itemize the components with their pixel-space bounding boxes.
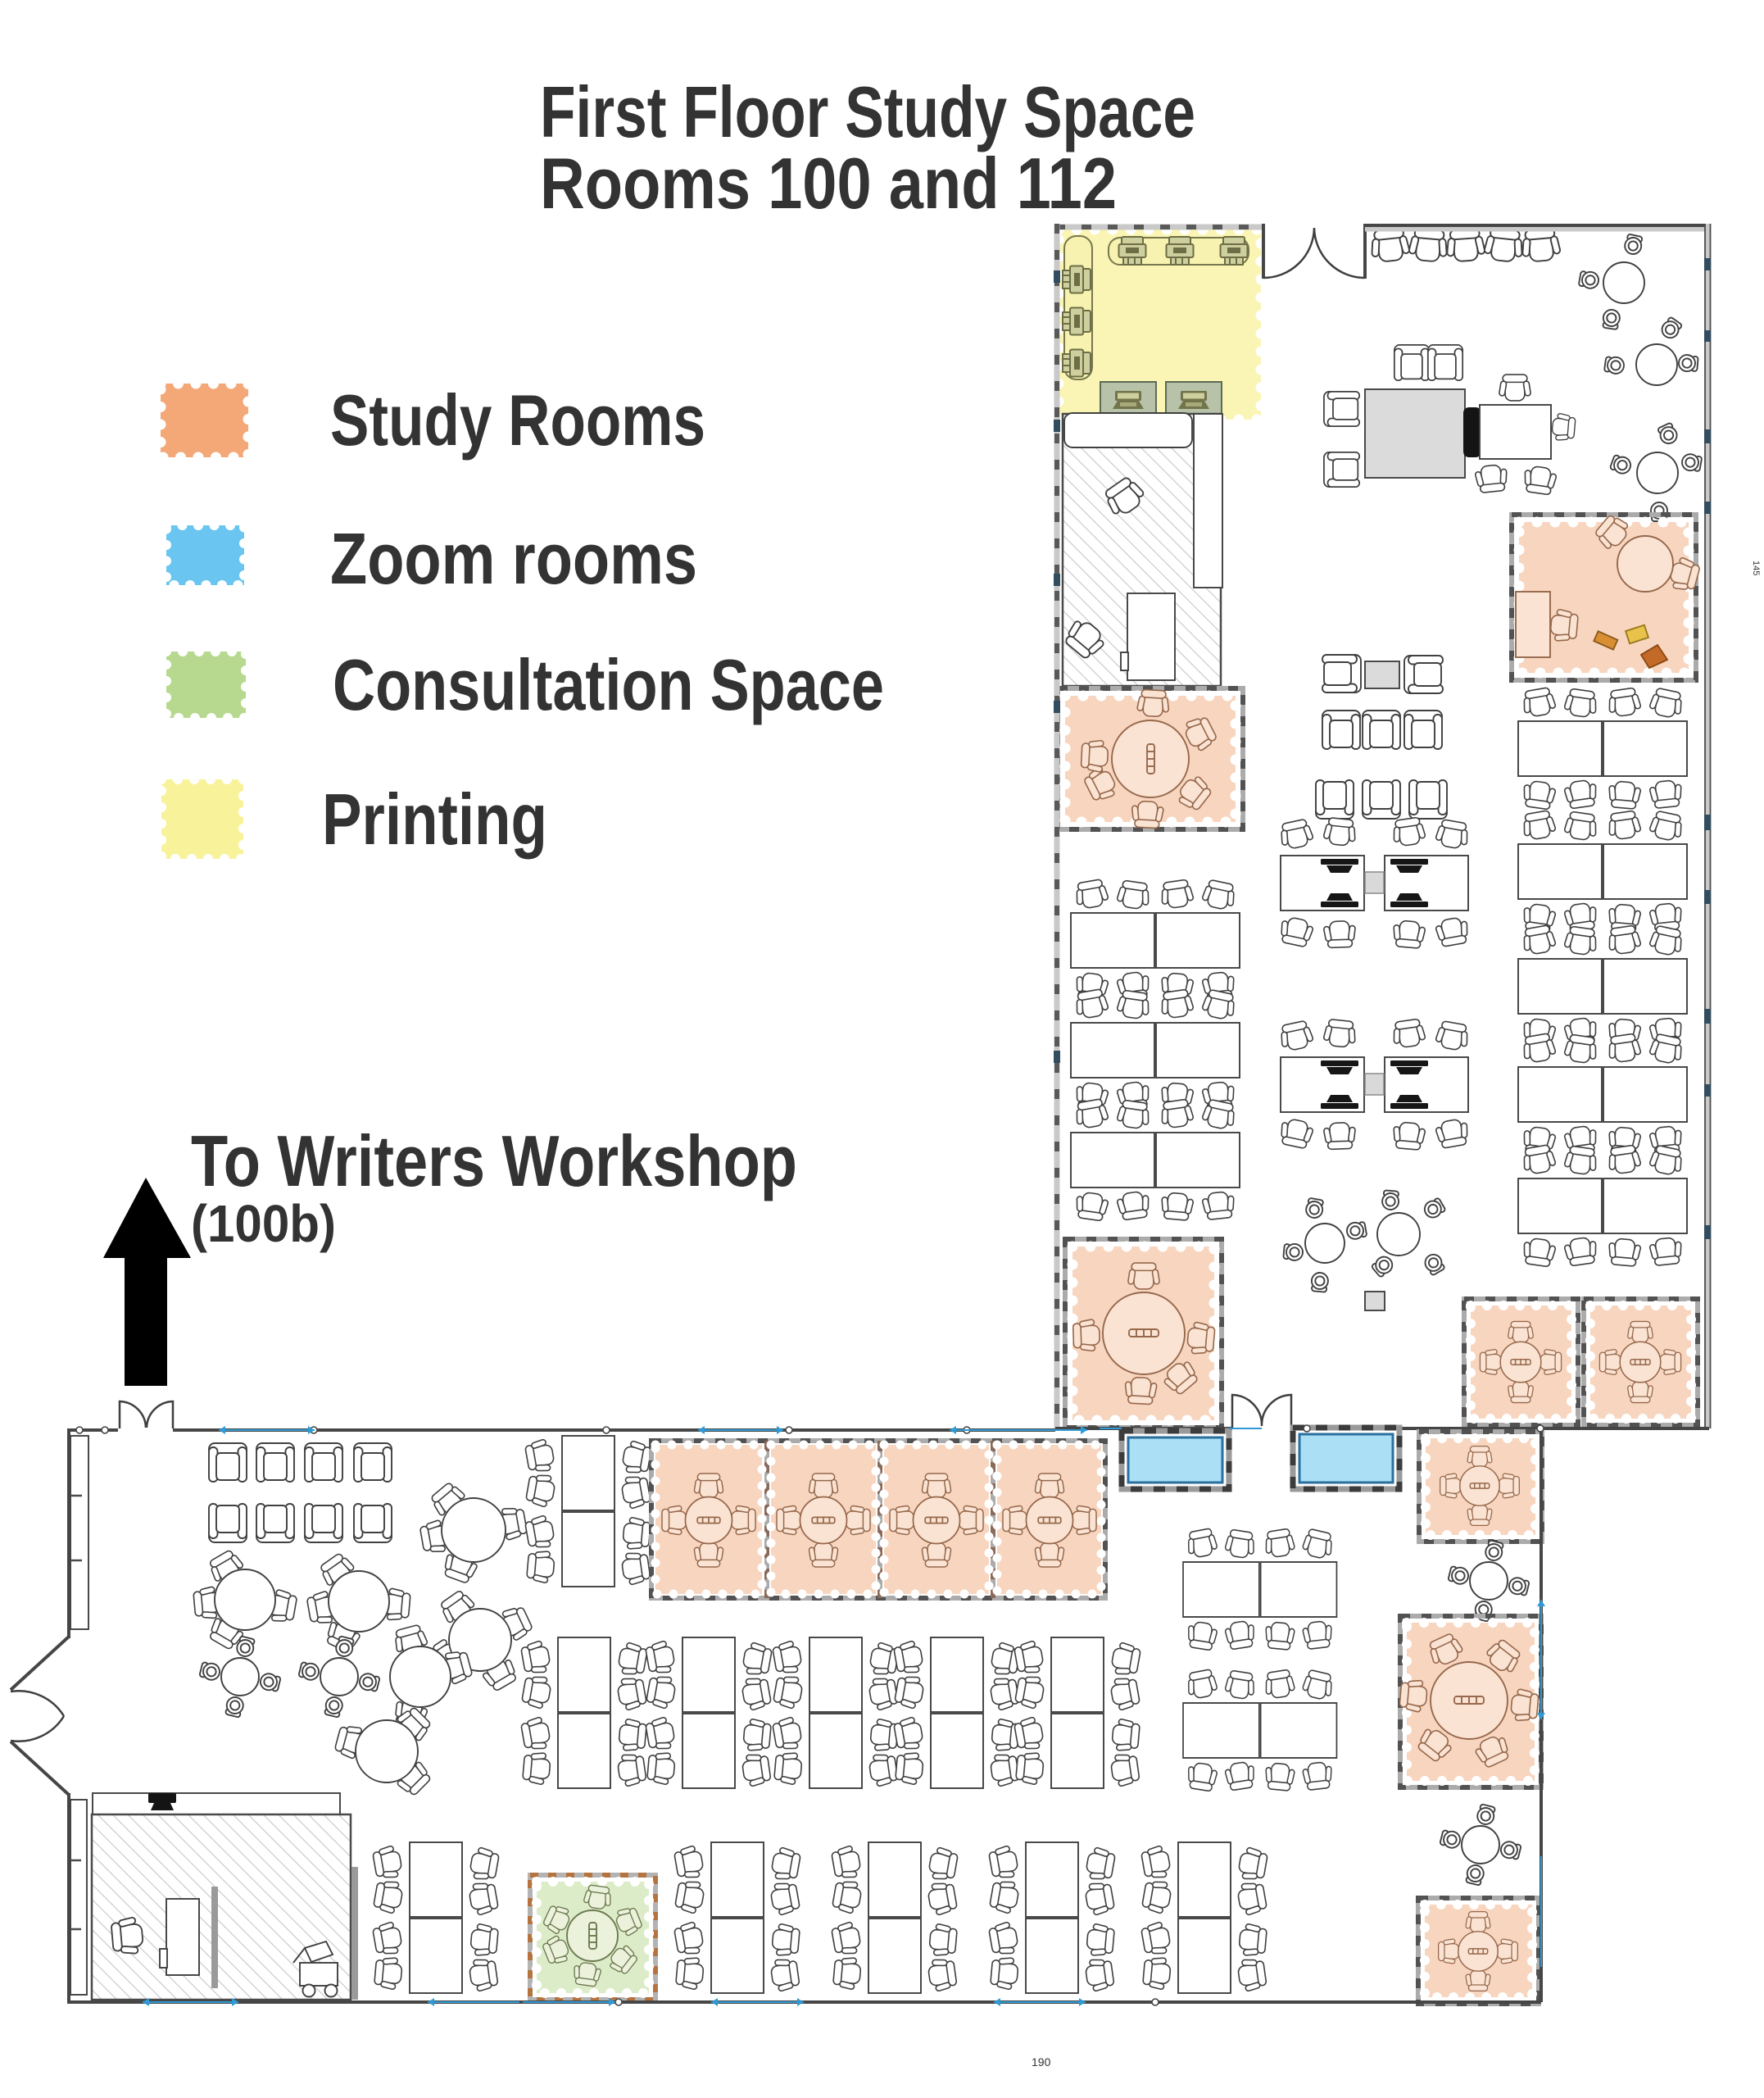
- svg-text:Zoom rooms: Zoom rooms: [330, 518, 697, 599]
- svg-text:Rooms 100 and 112: Rooms 100 and 112: [540, 143, 1117, 224]
- svg-text:Study Rooms: Study Rooms: [330, 379, 705, 461]
- svg-text:Consultation Space: Consultation Space: [333, 644, 884, 725]
- svg-text:To Writers Workshop: To Writers Workshop: [191, 1120, 797, 1201]
- svg-text:Printing: Printing: [322, 779, 547, 860]
- svg-text:145: 145: [1751, 561, 1761, 575]
- svg-text:(100b): (100b): [191, 1194, 336, 1253]
- svg-text:190: 190: [1032, 2055, 1051, 2068]
- svg-text:First Floor Study Space: First Floor Study Space: [540, 71, 1195, 152]
